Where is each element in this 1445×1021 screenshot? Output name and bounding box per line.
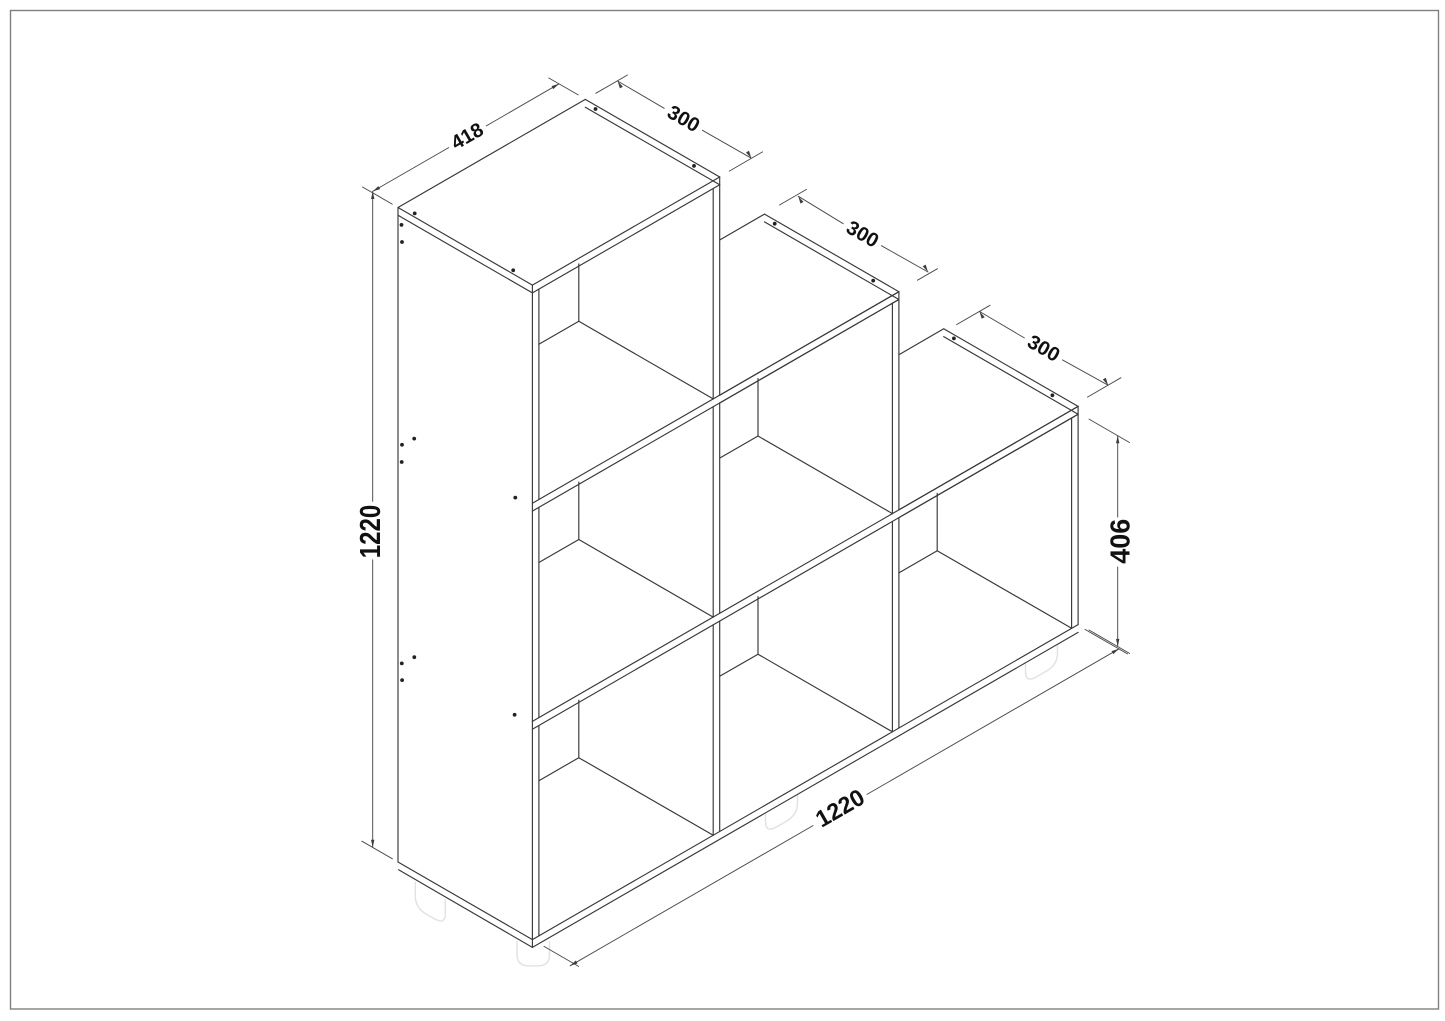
- svg-text:1220: 1220: [355, 505, 387, 559]
- svg-text:406: 406: [1105, 519, 1136, 564]
